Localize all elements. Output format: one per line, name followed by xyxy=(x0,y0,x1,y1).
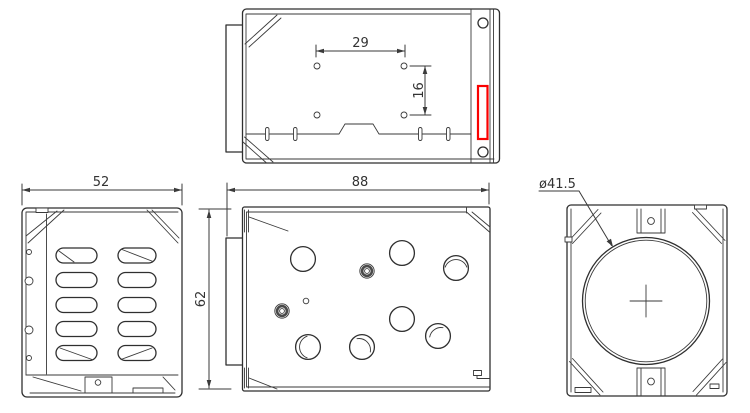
side-hole xyxy=(27,250,32,255)
panel-hole xyxy=(390,241,415,266)
vent-slot xyxy=(56,298,97,313)
edge-clip xyxy=(565,237,572,242)
diameter-label: ø41.5 xyxy=(539,177,576,192)
dim-52-label: 52 xyxy=(93,175,110,190)
snap-tab xyxy=(266,128,270,141)
edge-clip xyxy=(575,388,591,393)
screw-hole xyxy=(648,218,655,225)
base-tab-hole xyxy=(95,380,101,386)
front-view-side-tab xyxy=(226,238,243,365)
side-view: 52 xyxy=(22,175,182,397)
vent-slot xyxy=(118,273,156,288)
rivet-grommet xyxy=(275,304,289,318)
rivet-grommet xyxy=(360,264,374,278)
engineering-drawing-canvas: 29 16 52 xyxy=(0,0,750,413)
edge-clip xyxy=(36,208,48,213)
dim-88-label: 88 xyxy=(352,175,369,190)
panel-hole xyxy=(350,335,375,360)
dim-arrow xyxy=(481,188,489,193)
dim-arrow xyxy=(207,380,212,388)
vent-slot xyxy=(56,322,97,337)
panel-hole xyxy=(426,324,451,349)
flange-screw-hole xyxy=(478,147,488,157)
flange-screw-hole xyxy=(478,18,488,28)
top-view-side-tab xyxy=(226,25,243,152)
snap-tab xyxy=(447,128,451,141)
vent-slot xyxy=(56,248,97,263)
dim-16-label: 16 xyxy=(412,82,427,99)
dimension-52: 52 xyxy=(22,175,182,205)
top-view-outline xyxy=(243,9,500,163)
vent-slot xyxy=(56,346,97,361)
vent-slot xyxy=(56,273,97,288)
vent-slot xyxy=(118,298,156,313)
side-hole xyxy=(25,326,33,334)
orthographic-views-drawing: 29 16 52 xyxy=(0,0,750,413)
snap-tab xyxy=(419,128,423,141)
edge-clip xyxy=(695,205,707,209)
rear-view: ø41.5 xyxy=(539,177,727,396)
front-view-outline xyxy=(243,207,491,391)
vent-slot xyxy=(118,322,156,337)
side-hole xyxy=(27,356,32,361)
top-view: 29 16 xyxy=(226,9,500,163)
base-foot xyxy=(133,388,163,393)
dim-arrow xyxy=(174,188,182,193)
edge-clip xyxy=(710,384,719,389)
panel-hole xyxy=(291,247,316,272)
side-view-outline xyxy=(22,208,182,397)
dim-arrow xyxy=(207,210,212,218)
corner-tab xyxy=(474,371,482,376)
snap-tab xyxy=(294,128,298,141)
dim-62-label: 62 xyxy=(194,291,209,308)
panel-hole xyxy=(390,307,415,332)
pilot-hole xyxy=(303,298,309,304)
dim-29-label: 29 xyxy=(352,36,369,51)
mounting-hole xyxy=(314,112,320,118)
mounting-hole xyxy=(401,112,407,118)
side-hole xyxy=(25,277,33,285)
dim-arrow xyxy=(227,188,235,193)
screw-hole xyxy=(648,378,655,385)
front-view: 88 62 xyxy=(194,175,490,391)
mounting-hole xyxy=(314,63,320,69)
dim-arrow xyxy=(22,188,30,193)
mounting-hole xyxy=(401,63,407,69)
